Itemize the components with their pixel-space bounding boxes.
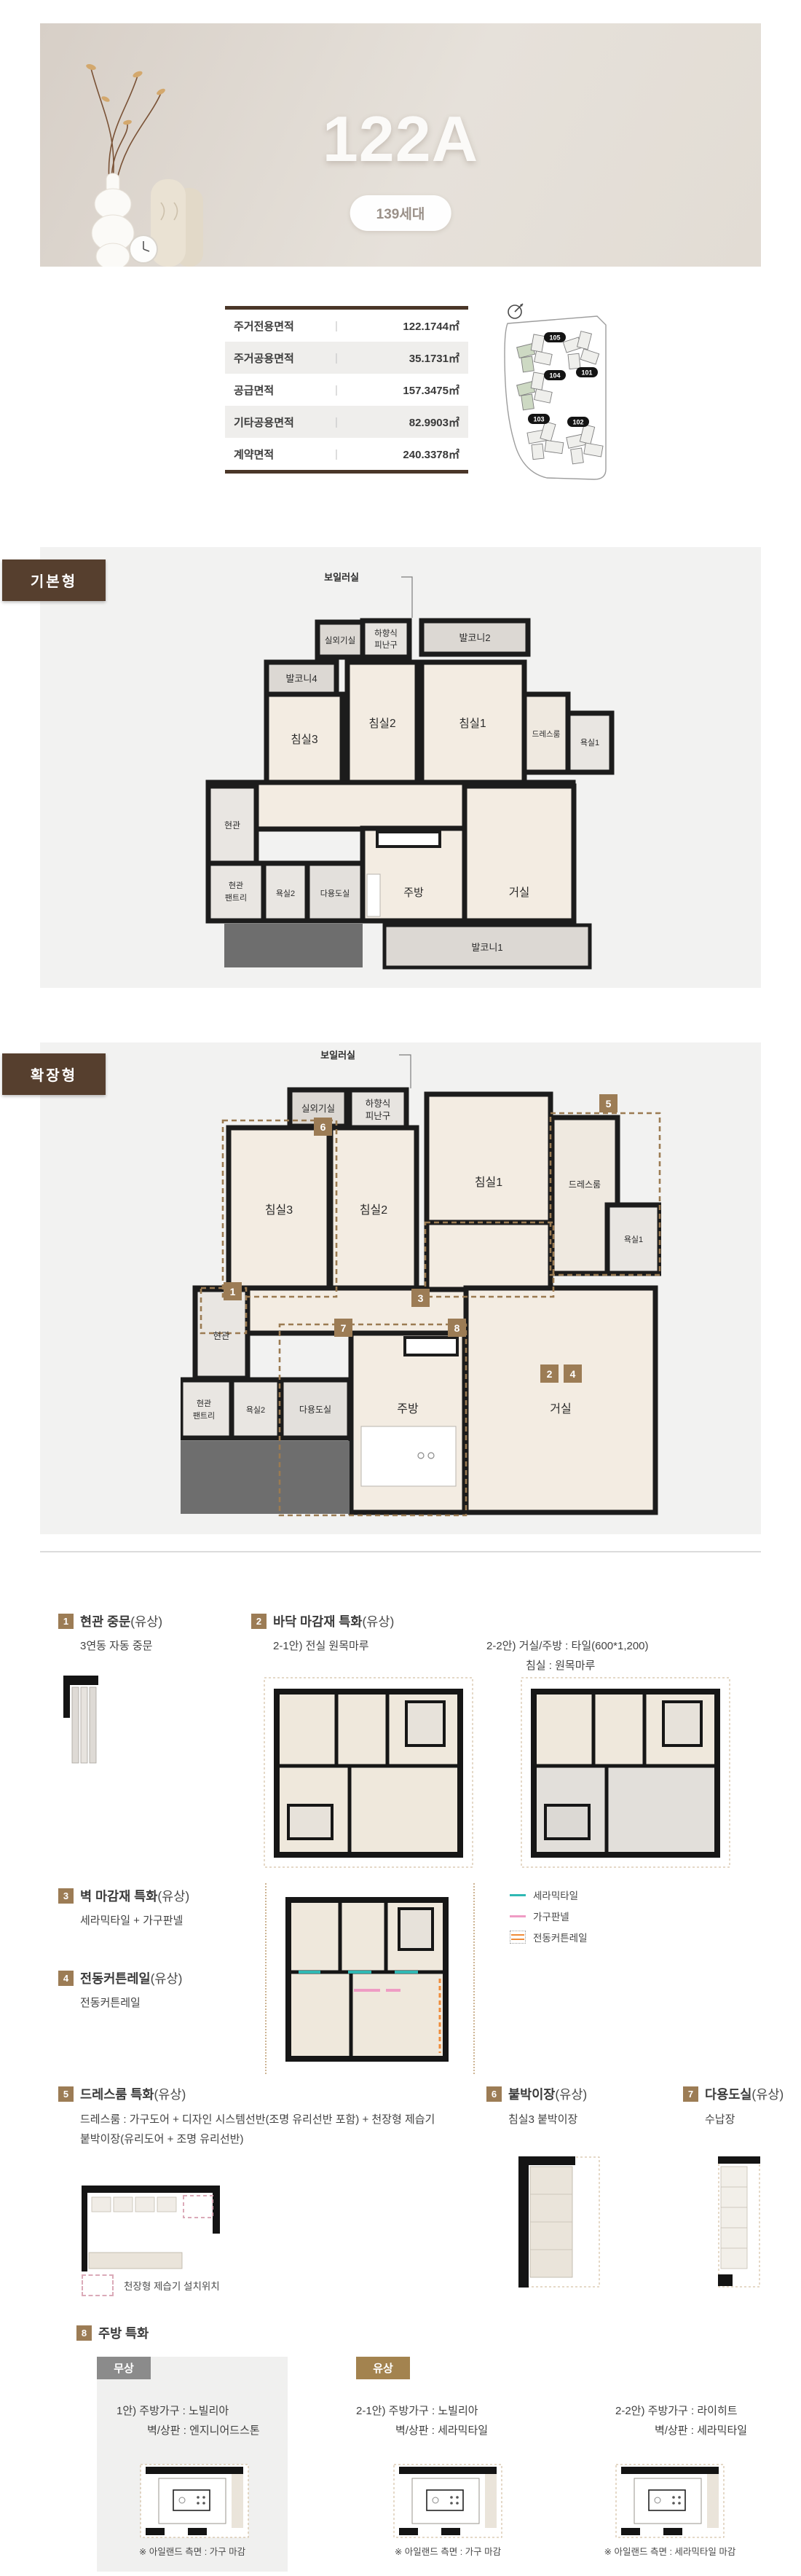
paid-tag: 유상 (356, 2357, 410, 2379)
room-label-escape2: 피난구 (366, 1111, 391, 1121)
feature2-option2-desc: 2-2안) 거실/주방 : 타일(600*1,200) 침실 : 원목마루 (486, 1636, 649, 1676)
room-label-bath2: 욕실2 (276, 889, 295, 898)
kitchen-option22-line2: 벽/상판 : 세라믹타일 (615, 2421, 747, 2440)
room-bed1-extension (427, 1222, 551, 1289)
feature2-paid-label: (유상) (362, 1612, 394, 1630)
feature6-desc: 침실3 붙박이장 (508, 2110, 577, 2129)
marker-1: 1 (224, 1282, 242, 1300)
svg-text:1: 1 (230, 1286, 236, 1297)
kitchen-option21-text: 2-1안) 주방가구 : 노빌리아 벽/상판 : 세라믹타일 (356, 2401, 488, 2440)
feature2-option2-line1: 2-2안) 거실/주방 : 타일(600*1,200) (486, 1636, 649, 1656)
legend-item-rail: 전동커튼레일 (510, 1929, 588, 1945)
svg-text:8: 8 (454, 1322, 460, 1334)
marker-2: 2 (540, 1364, 559, 1383)
room-label-dress: 드레스룸 (569, 1179, 601, 1190)
feature1-header: 1 현관 중문 (유상) (58, 1612, 162, 1630)
area-value: 122.1744㎡ (346, 318, 459, 334)
feature8-header: 8 주방 특화 (76, 2324, 149, 2342)
feature5-desc-line1: 드레스룸 : 가구도어 + 디자인 시스템선반(조명 유리선반 포함) + 천장… (80, 2110, 435, 2129)
feature5-desc-line2: 붙박이장(유리도어 + 조명 유리선반) (80, 2129, 243, 2149)
legend-label: 전동커튼레일 (533, 1930, 588, 1944)
feature4-desc: 전동커튼레일 (80, 1993, 141, 2013)
feature2-option2-line2: 침실 : 원목마루 (486, 1656, 649, 1676)
area-label: 공급면적 (234, 382, 327, 398)
basic-plan-badge: 기본형 (2, 559, 106, 601)
room-label-balcony2: 발코니2 (459, 632, 490, 643)
room-label-pantry2: 팬트리 (225, 893, 247, 903)
kitchen-option21-line1: 2-1안) 주방가구 : 노빌리아 (356, 2401, 488, 2421)
svg-text:6: 6 (320, 1121, 326, 1133)
kitchen-option1-text: 1안) 주방가구 : 노빌리아 벽/상판 : 엔지니어드스톤 (117, 2401, 260, 2440)
extended-plan-badge: 확장형 (2, 1053, 106, 1095)
feature1-title: 현관 중문 (80, 1612, 130, 1630)
feature3-desc: 세라믹타일 + 가구판넬 (80, 1911, 183, 1931)
room-label-pantry2: 팬트리 (193, 1411, 215, 1421)
room-label-bed1: 침실1 (459, 717, 486, 730)
feature5-title: 드레스룸 특화 (80, 2085, 154, 2103)
feature5-number-badge: 5 (58, 2086, 74, 2102)
room-label-escape1: 하향식 (366, 1099, 391, 1109)
feature5-header: 5 드레스룸 특화 (유상) (58, 2085, 186, 2103)
feature6-number-badge: 6 (486, 2086, 502, 2102)
legend-label: 세라믹타일 (533, 1888, 578, 1902)
svg-text:105: 105 (549, 334, 560, 342)
room-label-bed2: 침실2 (368, 717, 395, 730)
room-escape-hatch (363, 621, 409, 657)
table-row: 기타공용면적 | 82.9903㎡ (225, 406, 468, 438)
dotted-separator-left (265, 1883, 267, 2074)
room-label-bed2: 침실2 (360, 1203, 387, 1217)
feature2-plan-option1 (264, 1677, 473, 1868)
feature2-plan-option2 (521, 1677, 730, 1868)
feature6-title: 붙박이장 (508, 2085, 555, 2103)
feature6-header: 6 붙박이장 (유상) (486, 2085, 587, 2103)
area-label: 주거공용면적 (234, 350, 327, 366)
feature5-paid-label: (유상) (154, 2085, 186, 2103)
feature6-paid-label: (유상) (555, 2085, 587, 2103)
area-label: 기타공용면적 (234, 415, 327, 430)
marker-5: 5 (599, 1094, 617, 1112)
feature1-desc: 3연동 자동 중문 (80, 1636, 152, 1656)
table-row: 공급면적 | 157.3475㎡ (225, 374, 468, 406)
room-bed1 (427, 1094, 551, 1222)
marker-4: 4 (564, 1364, 582, 1383)
kitchen-diagram-option21 (393, 2464, 502, 2538)
area-table: 주거전용면적 | 122.1744㎡ 주거공용면적 | 35.1731㎡ 공급면… (225, 306, 468, 474)
hero-banner: 122A 139세대 (40, 23, 761, 267)
feature7-paid-label: (유상) (751, 2085, 784, 2103)
feature3-number-badge: 3 (58, 1888, 74, 1904)
kitchen-option21-line2: 벽/상판 : 세라믹타일 (356, 2421, 488, 2440)
room-label-entry: 현관 (224, 820, 240, 830)
feature7-desc: 수납장 (705, 2110, 735, 2129)
room-label-escape1: 하향식 (374, 628, 398, 638)
feature1-paid-label: (유상) (130, 1612, 162, 1630)
marker-3: 3 (411, 1289, 430, 1307)
feature1-number-badge: 1 (58, 1614, 74, 1629)
area-label: 주거전용면적 (234, 318, 327, 334)
feature2-option1-desc: 2-1안) 전실 원목마루 (273, 1636, 369, 1656)
feature7-header: 7 다용도실 (유상) (683, 2085, 784, 2103)
divider: | (327, 448, 346, 460)
kitchen-diagram-option1 (140, 2464, 249, 2538)
room-living (466, 1288, 655, 1512)
room-label-escape2: 피난구 (374, 640, 398, 650)
curtain-rail-swatch-icon (510, 1931, 526, 1944)
feature3-header: 3 벽 마감재 특화 (유상) (58, 1887, 189, 1905)
room-label-outdoor-unit: 실외기실 (301, 1104, 335, 1114)
feature3-title: 벽 마감재 특화 (80, 1887, 157, 1905)
feature5-dressroom-diagram (82, 2186, 220, 2271)
svg-text:104: 104 (549, 372, 560, 380)
section-divider (40, 1551, 761, 1552)
kitchen-option1-line1: 1안) 주방가구 : 노빌리아 (117, 2401, 260, 2421)
room-label-pantry1: 현관 (197, 1399, 211, 1408)
feature6-closet-diagram (518, 2156, 600, 2288)
room-label-balcony1: 발코니1 (471, 942, 502, 953)
divider: | (327, 384, 346, 396)
kitchen-option1-line2: 벽/상판 : 엔지니어드스톤 (117, 2421, 260, 2440)
feature4-paid-label: (유상) (151, 1969, 183, 1987)
room-entry-pantry (208, 863, 264, 921)
divider: | (327, 320, 346, 332)
kitchen-caption1: ※ 아일랜드 측면 : 가구 마감 (97, 2544, 288, 2558)
feature8-title: 주방 특화 (98, 2324, 149, 2342)
room-escape-hatch (350, 1090, 406, 1130)
floorplan-basic: 보일러실 실외기실 하향식 피난구 발코니2 발코니4 침실3 침실2 침실1 … (195, 568, 620, 985)
area-label: 계약면적 (234, 447, 327, 462)
dotted-separator-right (473, 1883, 475, 2074)
divider: | (327, 352, 346, 364)
feature3-paid-label: (유상) (157, 1887, 189, 1905)
compass-icon (508, 304, 523, 318)
note-label: 천장형 제습기 설치위치 (124, 2278, 220, 2293)
room-label-bath1: 욕실1 (624, 1235, 643, 1244)
building-label-105: 105 (544, 332, 566, 342)
room-label-bath2: 욕실2 (246, 1405, 265, 1415)
room-label-kitchen: 주방 (403, 887, 424, 899)
room-label-living: 거실 (550, 1402, 571, 1415)
feature7-utility-diagram (718, 2156, 760, 2288)
svg-text:103: 103 (533, 416, 544, 423)
household-count-badge: 139세대 (350, 195, 451, 231)
svg-text:101: 101 (581, 369, 592, 377)
face-sculpture-icon (151, 179, 203, 267)
room-label-bath1: 욕실1 (580, 738, 599, 747)
area-value: 82.9903㎡ (346, 415, 459, 430)
room-label-bed3: 침실3 (265, 1203, 293, 1217)
marker-7: 7 (334, 1319, 352, 1337)
dehumidifier-swatch-icon (82, 2274, 114, 2296)
svg-text:7: 7 (341, 1322, 347, 1334)
room-label-boiler: 보일러실 (324, 572, 359, 583)
feature2-title: 바닥 마감재 특화 (273, 1612, 362, 1630)
area-value: 157.3475㎡ (346, 382, 459, 398)
room-label-bed1: 침실1 (475, 1176, 502, 1189)
room-label-living: 거실 (509, 886, 530, 899)
svg-text:5: 5 (606, 1098, 612, 1110)
site-location-map: 105 101 104 103 102 (492, 297, 648, 487)
svg-text:4: 4 (570, 1368, 576, 1380)
floorplan-brochure-page: 122A 139세대 주거전용면적 | 122.1744㎡ 주거공용면적 | 3… (0, 0, 801, 2576)
terrace-dark-area (224, 924, 363, 967)
room-label-outdoor-unit: 실외기실 (325, 636, 355, 645)
unit-type-title: 122A (40, 102, 761, 176)
wall-finish-legend: 세라믹타일 가구판넬 전동커튼레일 (510, 1887, 588, 1950)
room-label-utility: 다용도실 (320, 889, 350, 898)
free-tag: 무상 (97, 2357, 151, 2379)
floorplan-extended: 6 5 1 3 7 8 2 4 보일러실 실외기실 하향식 피난구 침실3 침실… (181, 1048, 661, 1521)
feature7-title: 다용도실 (705, 2085, 751, 2103)
area-value: 240.3378㎡ (346, 447, 459, 462)
ceramic-tile-swatch-icon (510, 1894, 526, 1896)
clock-icon (130, 235, 157, 263)
kitchen-caption2: ※ 아일랜드 측면 : 가구 마감 (368, 2544, 528, 2558)
marker-8: 8 (448, 1319, 466, 1337)
building-label-104: 104 (544, 370, 566, 380)
feature4-header: 4 전동커튼레일 (유상) (58, 1969, 182, 1987)
room-label-utility: 다용도실 (299, 1405, 331, 1415)
svg-text:3: 3 (418, 1292, 424, 1304)
room-label-boiler: 보일러실 (320, 1050, 355, 1061)
room-label-kitchen: 주방 (397, 1402, 419, 1415)
white-vase-icon (92, 173, 134, 267)
feature1-door-diagram (63, 1676, 98, 1769)
svg-text:102: 102 (572, 419, 583, 426)
furniture-panel-swatch-icon (510, 1915, 526, 1917)
marker-6: 6 (314, 1118, 332, 1136)
feature5-note: 천장형 제습기 설치위치 (82, 2274, 220, 2296)
room-label-dress: 드레스룸 (532, 730, 561, 739)
room-label-balcony4: 발코니4 (285, 673, 317, 684)
room-entry-pantry (181, 1380, 232, 1438)
feature4-number-badge: 4 (58, 1971, 74, 1986)
building-label-101: 101 (576, 367, 598, 377)
terrace-dark-area (181, 1441, 350, 1514)
legend-label: 가구판넬 (533, 1909, 569, 1923)
svg-text:2: 2 (547, 1368, 553, 1380)
building-label-102: 102 (567, 417, 589, 427)
kitchen-option22-line1: 2-2안) 주방가구 : 라이히트 (615, 2401, 747, 2421)
room-label-entry: 현관 (213, 1331, 230, 1341)
area-value: 35.1731㎡ (346, 350, 459, 366)
table-row: 주거공용면적 | 35.1731㎡ (225, 342, 468, 374)
legend-item-panel: 가구판넬 (510, 1908, 588, 1924)
boiler-callout-line (399, 1055, 411, 1088)
room-living (465, 786, 574, 921)
feature3-4-plan-diagram (278, 1888, 457, 2070)
kitchen-caption3: ※ 아일랜드 측면 : 세라믹타일 마감 (586, 2544, 754, 2558)
room-label-pantry1: 현관 (229, 881, 243, 890)
room-label-bed3: 침실3 (291, 733, 317, 746)
kitchen-option22-text: 2-2안) 주방가구 : 라이히트 벽/상판 : 세라믹타일 (615, 2401, 747, 2440)
feature2-header: 2 바닥 마감재 특화 (유상) (251, 1612, 394, 1630)
kitchen-diagram-option22 (615, 2464, 725, 2538)
table-row: 계약면적 | 240.3378㎡ (225, 438, 468, 470)
legend-item-ceramic: 세라믹타일 (510, 1887, 588, 1903)
building-label-103: 103 (528, 414, 550, 424)
feature7-number-badge: 7 (683, 2086, 698, 2102)
feature2-number-badge: 2 (251, 1614, 267, 1629)
feature8-number-badge: 8 (76, 2325, 92, 2341)
feature4-title: 전동커튼레일 (80, 1969, 151, 1987)
table-row: 주거전용면적 | 122.1744㎡ (225, 310, 468, 342)
boiler-callout-line (401, 577, 412, 618)
divider: | (327, 416, 346, 428)
